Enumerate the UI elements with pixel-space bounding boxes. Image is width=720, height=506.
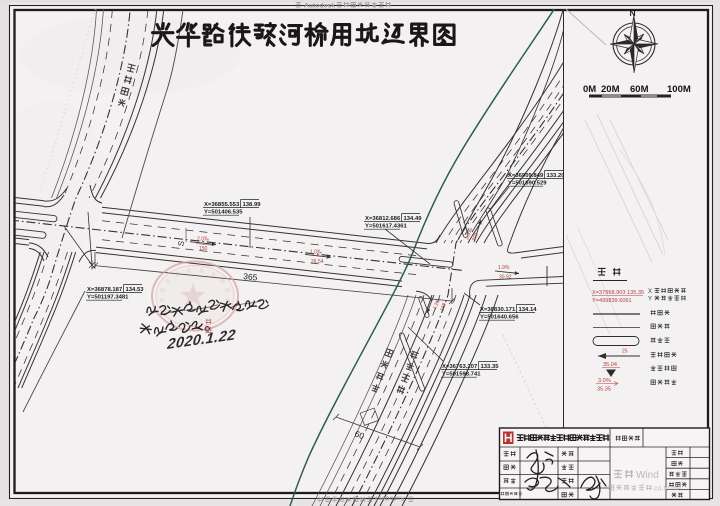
svg-text:X=36812.686: X=36812.686 [365,216,401,222]
svg-text:30.92: 30.92 [499,275,512,281]
svg-text:60M: 60M [630,84,649,95]
svg-text:134.14: 134.14 [519,307,538,313]
svg-text:X=36763.207: X=36763.207 [442,364,478,370]
svg-text:Y: Y [648,297,652,303]
svg-text:3.0%: 3.0% [598,378,611,384]
svg-text:1.0‰: 1.0‰ [310,250,322,256]
svg-text:133.20: 133.20 [547,173,566,179]
svg-text:Y=501617.4361: Y=501617.4361 [365,224,407,230]
svg-text:X=36878.187: X=36878.187 [87,287,123,293]
svg-text:Y=501197.3481: Y=501197.3481 [87,295,129,301]
svg-text:Autodesk: Autodesk [374,495,405,502]
svg-text:1.9%: 1.9% [498,265,510,271]
svg-text:N: N [630,8,636,18]
svg-text:X: X [648,289,652,295]
svg-text:100M: 100M [667,84,691,95]
svg-text:Y=501406.535: Y=501406.535 [204,210,243,216]
svg-text:35.04: 35.04 [603,362,617,368]
svg-text:134.53: 134.53 [126,287,145,293]
svg-text:Y=501640.656: Y=501640.656 [480,315,519,321]
svg-text:35.35: 35.35 [597,387,611,393]
svg-text:co.to me...: co.to me... [654,486,687,493]
svg-text:Y=501690.529: Y=501690.529 [508,181,547,187]
svg-text:134.49: 134.49 [404,216,423,222]
svg-text:150: 150 [199,246,208,252]
svg-text:X=37968.903 135.35: X=37968.903 135.35 [592,290,644,296]
svg-text:0M: 0M [583,84,596,95]
svg-text:2.0‰: 2.0‰ [197,237,209,243]
svg-text:138.99: 138.99 [243,202,262,208]
svg-text:20M: 20M [601,84,620,95]
svg-text:25: 25 [622,349,628,355]
svg-text:133.35: 133.35 [481,364,500,370]
svg-text:Wind: Wind [636,470,659,481]
svg-text:Y=501598.741: Y=501598.741 [442,372,481,378]
svg-text:26.54: 26.54 [311,259,324,265]
svg-text:Y=499839.6061: Y=499839.6061 [592,298,632,304]
svg-text:X=36855.553: X=36855.553 [204,202,240,208]
svg-text:X=36830.171: X=36830.171 [480,307,516,313]
svg-text:365: 365 [243,271,258,282]
svg-text:X=36909.849: X=36909.849 [508,173,544,179]
svg-text:Autodesk: Autodesk [304,3,335,10]
